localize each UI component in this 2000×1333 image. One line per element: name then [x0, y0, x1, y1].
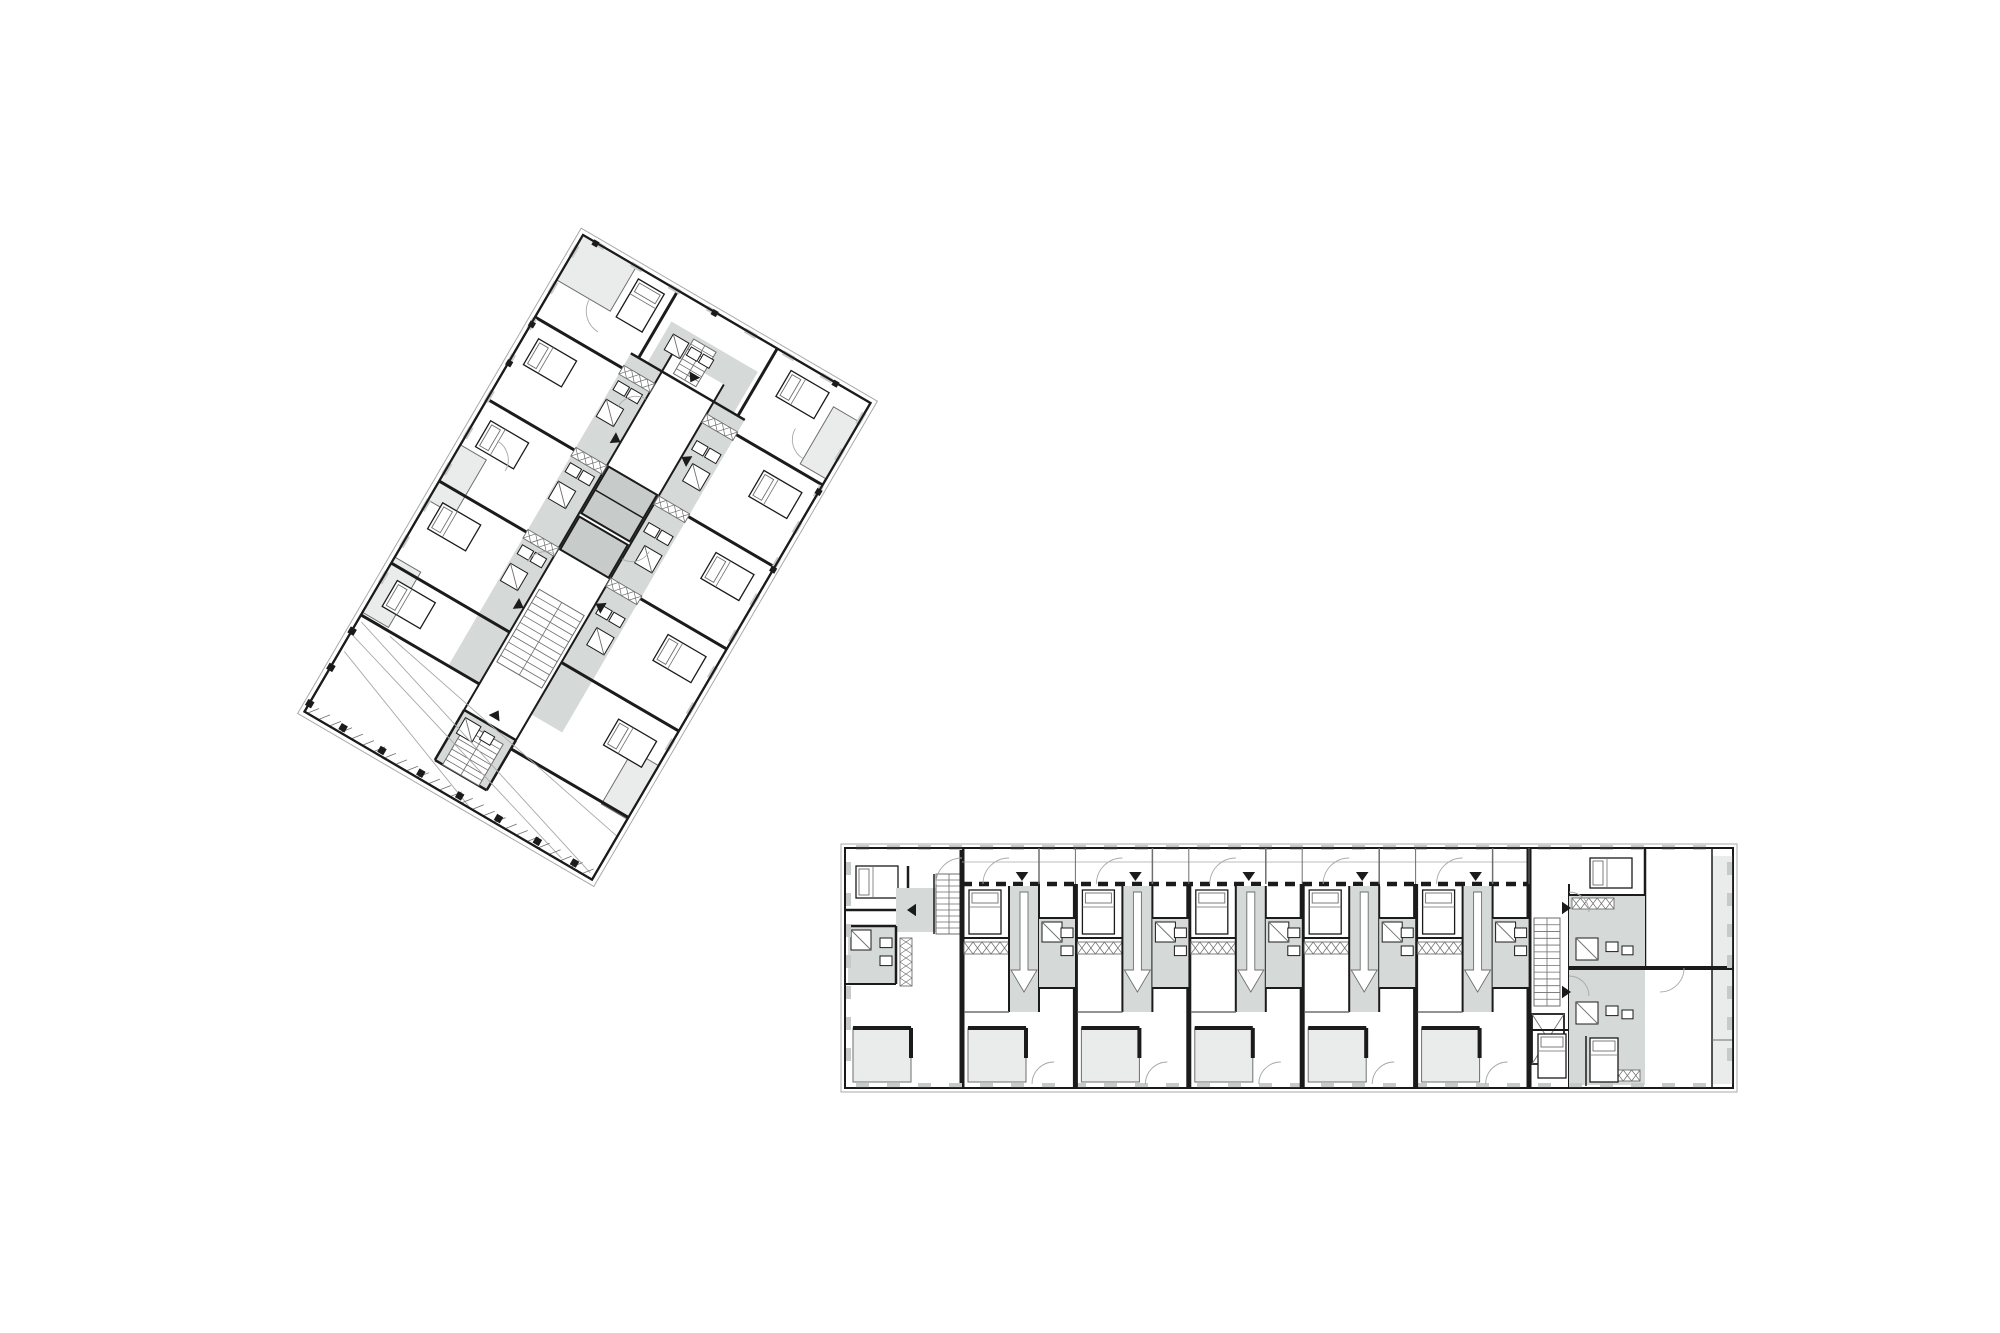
window-mullion-marks	[1727, 1048, 1732, 1061]
fixture-icon	[1606, 942, 1618, 952]
bed-icon	[1541, 1037, 1563, 1047]
balcony-area	[1308, 1028, 1366, 1082]
fixture-icon	[1288, 946, 1300, 956]
balcony-area	[853, 1028, 911, 1082]
fixture-icon	[1288, 928, 1300, 938]
bed-icon	[1312, 893, 1338, 903]
window-mullion-marks	[846, 924, 851, 937]
linear-building-plan	[841, 844, 1737, 1092]
balcony-area	[1195, 1028, 1253, 1082]
bed-icon	[1085, 893, 1111, 903]
bed-icon	[972, 893, 998, 903]
fixture-icon	[1622, 1010, 1633, 1019]
bed-icon	[1593, 1041, 1615, 1051]
window-mullion-marks	[1727, 893, 1732, 906]
window-mullion-marks	[1727, 862, 1732, 875]
window-mullion-marks	[1727, 924, 1732, 937]
fixture-icon	[1401, 928, 1413, 938]
bed-icon	[1426, 893, 1452, 903]
fixture-icon	[1174, 928, 1186, 938]
window-mullion-marks	[846, 1048, 851, 1061]
window-mullion-marks	[846, 1017, 851, 1030]
bed-icon	[1593, 861, 1603, 885]
fixture-icon	[880, 938, 892, 948]
window-mullion-marks	[1727, 1017, 1732, 1030]
bed-icon	[859, 869, 869, 895]
balcony-area	[1422, 1028, 1480, 1082]
window-mullion-marks	[846, 862, 851, 875]
rotated-tower-plan	[298, 228, 878, 886]
window-mullion-marks	[1727, 986, 1732, 999]
fixture-icon	[1515, 946, 1527, 956]
floor-plan-canvas	[0, 0, 2000, 1333]
fixture-icon	[1606, 1006, 1618, 1016]
fixture-icon	[1061, 946, 1073, 956]
balcony-area	[968, 1028, 1026, 1082]
window-mullion-marks	[846, 893, 851, 906]
fixture-icon	[1622, 946, 1633, 955]
window-mullion-marks	[846, 986, 851, 999]
window-mullion-marks	[1727, 955, 1732, 968]
window-mullion-marks	[846, 955, 851, 968]
fixture-icon	[880, 956, 892, 966]
fixture-icon	[1401, 946, 1413, 956]
fixture-icon	[1515, 928, 1527, 938]
bed-icon	[1199, 893, 1225, 903]
floor-plan-sheet	[0, 0, 2000, 1333]
balcony-area	[1081, 1028, 1139, 1082]
fixture-icon	[1061, 928, 1073, 938]
fixture-icon	[1174, 946, 1186, 956]
